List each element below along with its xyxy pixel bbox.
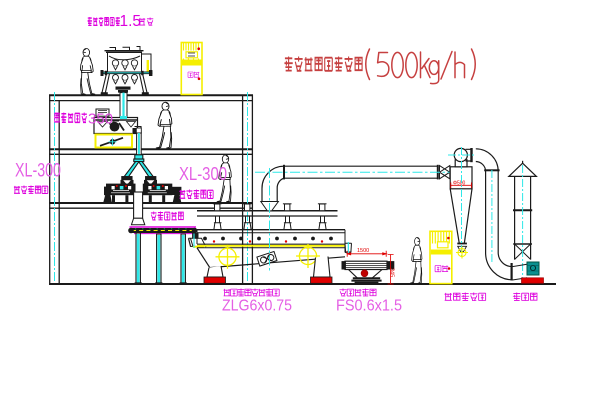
svg-text:ZLG6x0.75: ZLG6x0.75 [222,298,292,315]
svg-text:1500: 1500 [357,248,369,254]
svg-text:345: 345 [389,268,395,277]
svg-text:XL-300: XL-300 [179,164,227,184]
svg-text:FS0.6x1.5: FS0.6x1.5 [336,298,402,315]
svg-text:1.5: 1.5 [120,13,142,30]
svg-text:350: 350 [88,111,113,128]
svg-text:XL-300: XL-300 [15,160,61,182]
svg-text:Φ500: Φ500 [453,180,466,186]
